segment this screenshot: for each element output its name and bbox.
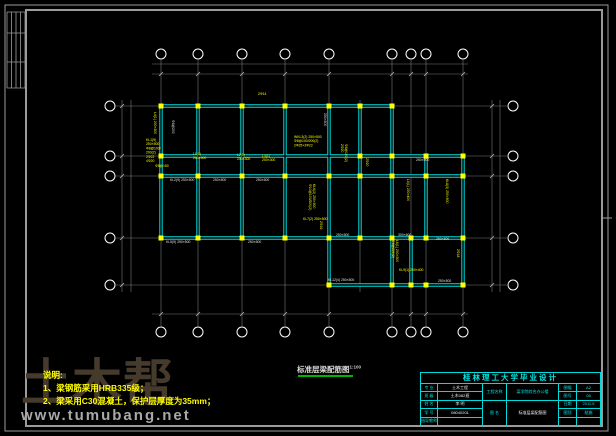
tb-label: 指导教师: [421, 418, 437, 425]
note-line-2: 2、梁采用C30混凝土，保护层厚度为35mm；: [43, 395, 215, 408]
tb-value: 08: [577, 392, 600, 399]
svg-text:KL1(9)250×500Φ8@100/200(2)2Φ22: KL1(9)250×500Φ8@100/200(2)2Φ224Φ20: [146, 138, 161, 163]
tb-value: 结施: [577, 409, 600, 416]
tb-label: 姓 名: [421, 401, 437, 408]
tb-project-label: 工程名称: [483, 384, 506, 400]
caption-underline: [298, 375, 353, 377]
svg-text:250×500: 250×500: [438, 279, 451, 283]
note-line-1: 1、梁钢筋采用HRB335级；: [43, 382, 215, 395]
svg-text:2Φ20: 2Φ20: [365, 158, 369, 166]
tb-label: 日期: [559, 401, 576, 408]
svg-text:L1(1)200×300: L1(1)200×300: [193, 152, 206, 160]
caption-scale: 1:100: [350, 365, 362, 370]
tb-value: 土木082班: [438, 392, 482, 399]
svg-text:KL9(1) 250×400: KL9(1) 250×400: [399, 268, 424, 272]
watermark-url: www.tumubang.net: [21, 407, 191, 424]
tb-value: A2: [577, 384, 600, 391]
tb-drawing-label: 图 名: [483, 401, 506, 425]
tb-label: 班 级: [421, 392, 437, 399]
svg-text:2Φ18: 2Φ18: [456, 249, 460, 257]
svg-text:250×500: 250×500: [416, 158, 429, 162]
tb-value: [577, 418, 600, 425]
svg-text:2Φ16: 2Φ16: [319, 221, 323, 229]
title-block: 桂林理工大学毕业设计 专 业 土木工程 班 级 土木082班 姓 名 李 明 学…: [420, 372, 601, 426]
svg-text:KL5(9) 250×500: KL5(9) 250×500: [166, 240, 191, 244]
svg-text:250×500: 250×500: [213, 178, 226, 182]
svg-text:KL6(2) 250×500Φ10@100/200(2): KL6(2) 250×500Φ10@100/200(2): [308, 184, 316, 210]
tb-label: 图号: [559, 392, 576, 399]
svg-text:KL2(9) 250×500: KL2(9) 250×500: [170, 178, 195, 182]
tb-label: 学 号: [421, 409, 437, 416]
svg-text:250×500: 250×500: [436, 237, 449, 241]
svg-text:2Φ14: 2Φ14: [258, 92, 266, 96]
tb-value: 08040201: [438, 409, 482, 416]
tb-value: 李 明: [438, 401, 482, 408]
svg-text:Φ8@200: Φ8@200: [171, 120, 175, 134]
tb-value: 土木工程: [438, 384, 482, 391]
svg-text:KL8(3) 250×500: KL8(3) 250×500: [445, 179, 449, 204]
tb-project-name: 某学院综合办公楼: [507, 384, 558, 400]
svg-text:300×600: 300×600: [398, 233, 411, 237]
svg-text:L5(1) 200×400: L5(1) 200×400: [406, 179, 410, 201]
svg-text:250×500: 250×500: [336, 233, 349, 237]
tb-label: 专 业: [421, 384, 437, 391]
svg-text:Φ8@150: Φ8@150: [155, 164, 169, 168]
svg-text:250×500: 250×500: [248, 240, 261, 244]
svg-text:L2(1)200×300: L2(1)200×300: [237, 153, 250, 161]
svg-text:250×500: 250×500: [323, 113, 327, 126]
tb-label: [559, 418, 576, 425]
notes-block: 说明: 1、梁钢筋采用HRB335级； 2、梁采用C30混凝土，保护层厚度为35…: [43, 369, 215, 408]
tb-value: 2011.6: [577, 401, 600, 408]
beam-annotations: KL1(9)250×500Φ8@100/200(2)2Φ224Φ20L4(1) …: [146, 92, 460, 283]
title-block-heading: 桂林理工大学毕业设计: [421, 373, 600, 383]
tb-value: [438, 418, 482, 425]
tb-label: 图幅: [559, 384, 576, 391]
cad-screenshot-page: { "watermark": { "logo": "土木帮", "url": "…: [0, 0, 616, 436]
svg-text:250×500: 250×500: [256, 178, 269, 182]
drawing-caption: 标准层梁配筋图1:100: [297, 364, 361, 375]
tb-label: 图别: [559, 409, 576, 416]
title-block-grid: 专 业 土木工程 班 级 土木082班 姓 名 李 明 学 号 08040201…: [421, 384, 600, 425]
notes-title: 说明:: [43, 369, 215, 382]
tb-drawing-name: 标准层梁配筋图: [507, 401, 558, 425]
svg-text:KL12(4) 250×500: KL12(4) 250×500: [328, 278, 354, 282]
svg-text:L4(1) 200×300: L4(1) 200×300: [153, 112, 157, 134]
svg-text:Φ8@100(2)2Φ20: Φ8@100(2)2Φ20: [340, 144, 348, 162]
caption-text: 标准层梁配筋图: [297, 365, 350, 374]
svg-text:WKL3(2) 250×500Φ8@100/200(2)2Φ: WKL3(2) 250×500Φ8@100/200(2)2Φ25+2Φ22: [294, 135, 322, 147]
